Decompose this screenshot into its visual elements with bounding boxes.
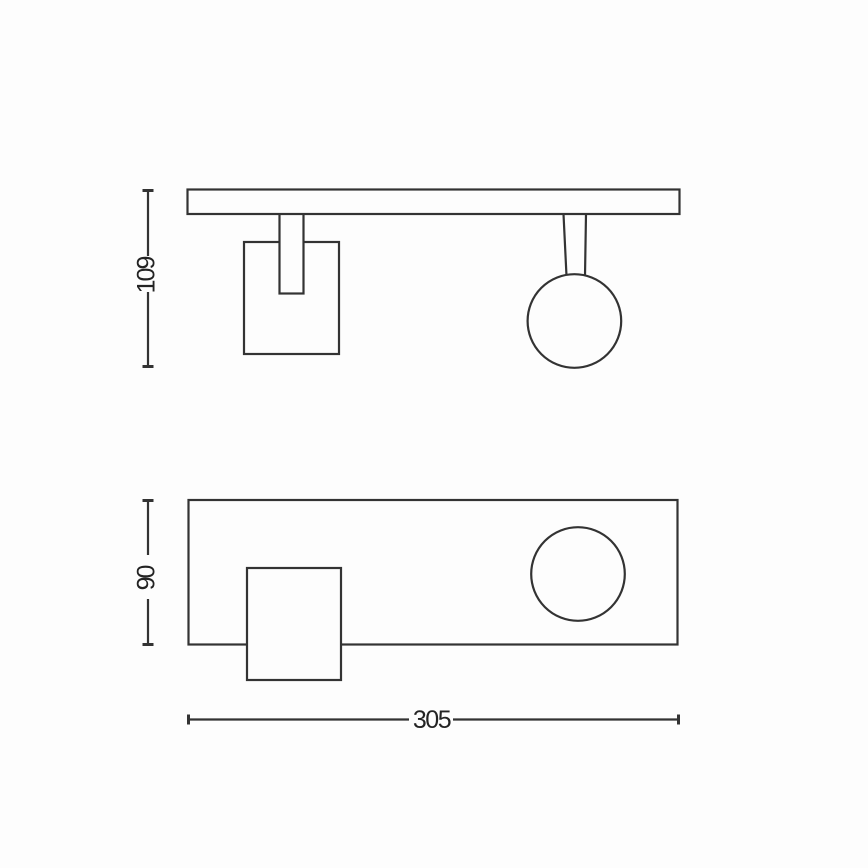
svg-text:109: 109 (132, 257, 160, 294)
svg-text:90: 90 (132, 566, 160, 591)
svg-text:305: 305 (413, 706, 451, 734)
